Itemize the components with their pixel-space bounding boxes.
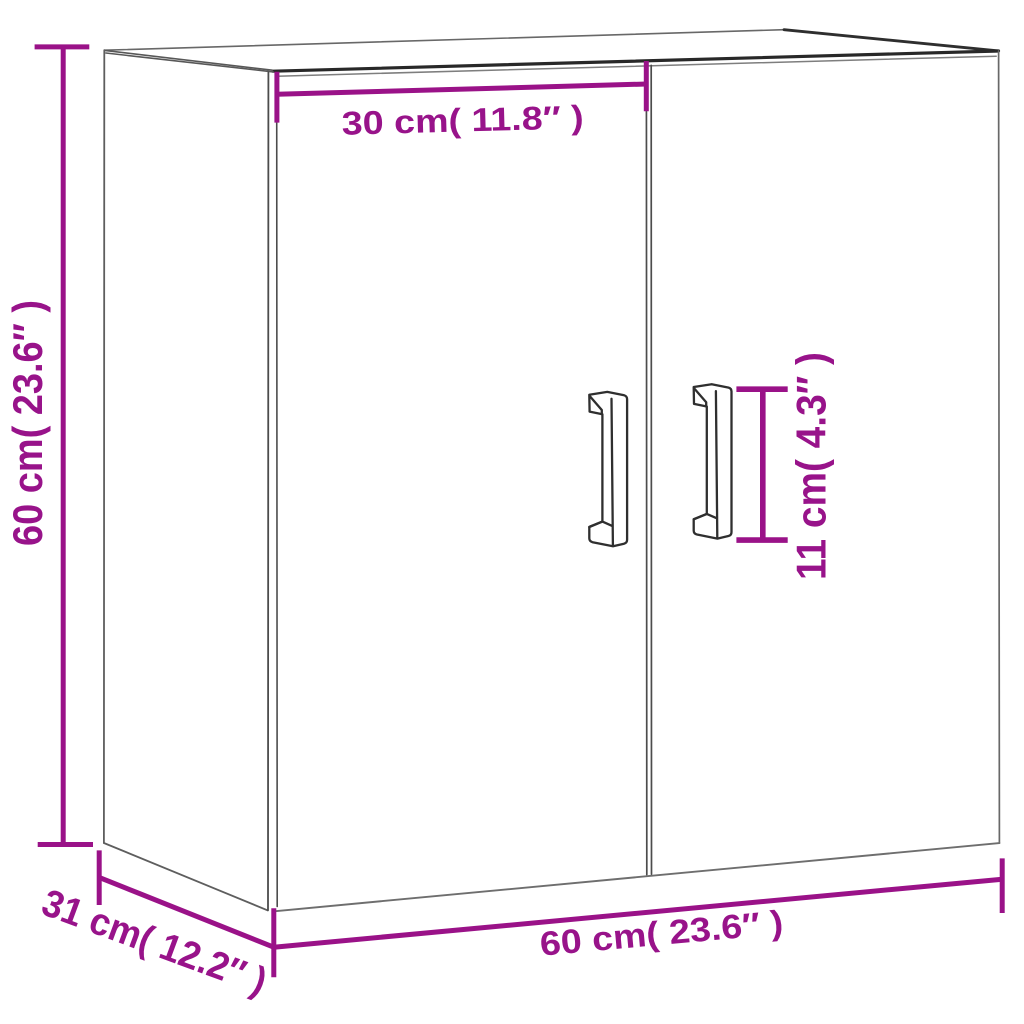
svg-text:11 cm( 4.3″ ): 11 cm( 4.3″ ) (787, 352, 834, 580)
svg-text:30 cm( 11.8″ ): 30 cm( 11.8″ ) (341, 98, 584, 142)
svg-text:60 cm( 23.6″ ): 60 cm( 23.6″ ) (4, 300, 51, 546)
